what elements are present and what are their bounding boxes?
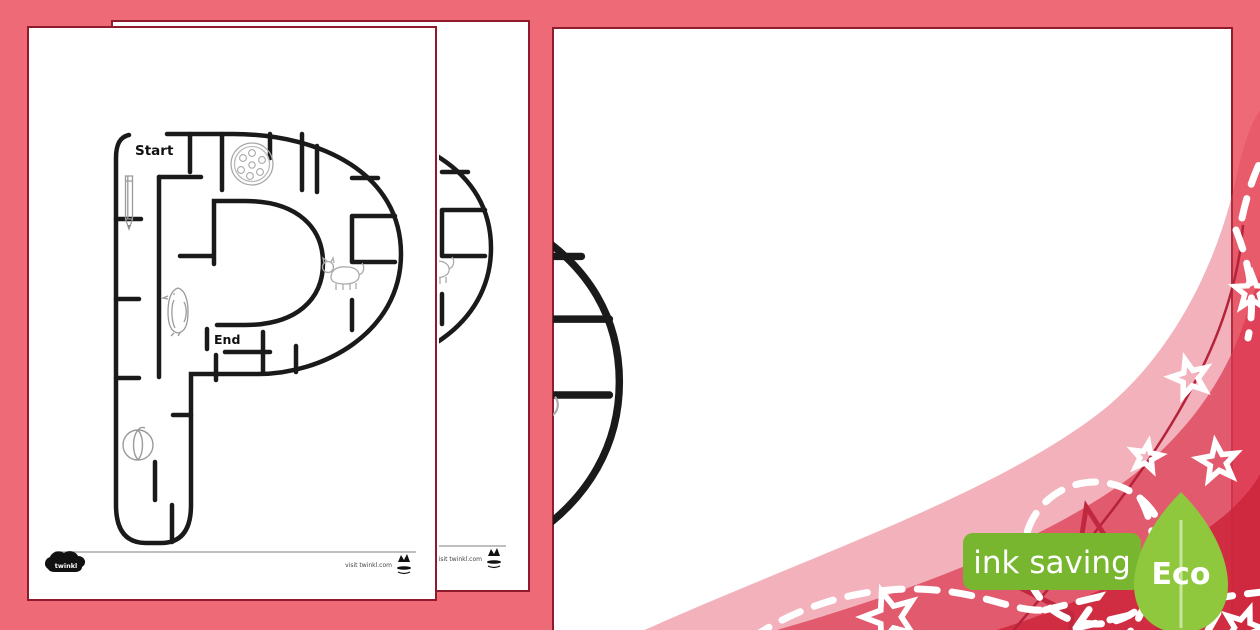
preview-scene: Start End bbox=[0, 0, 1260, 630]
resource-preview: Start End bbox=[0, 0, 1260, 630]
page-front bbox=[28, 27, 436, 600]
eco-label: Eco bbox=[1152, 557, 1211, 592]
ink-saving-label: ink saving bbox=[973, 545, 1131, 581]
